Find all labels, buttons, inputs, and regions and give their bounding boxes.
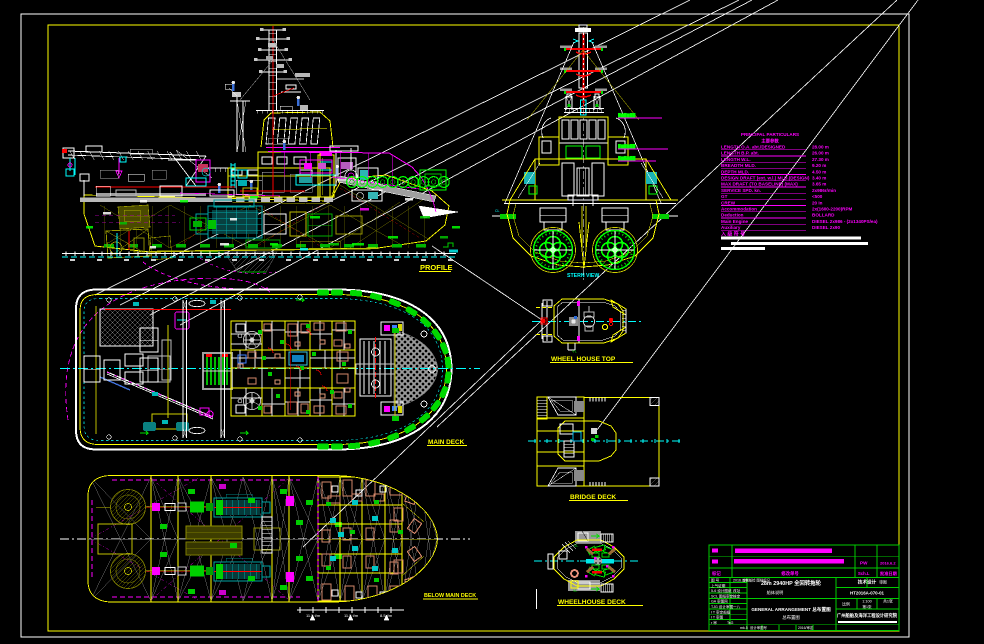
svg-text:5-6 设计图纸: 5-6 设计图纸 [711, 588, 732, 593]
svg-text:HT2016A-070-01: HT2016A-070-01 [850, 591, 884, 596]
svg-text:MAIN DECK: MAIN DECK [428, 439, 465, 446]
svg-text:BRIDGE DECK: BRIDGE DECK [570, 494, 616, 501]
svg-text:船体说明: 船体说明 [767, 589, 784, 596]
svg-text:WHEEL HOUSE TOP: WHEEL HOUSE TOP [551, 356, 616, 363]
svg-text:TJG 设计审图: TJG 设计审图 [711, 604, 734, 609]
svg-text:设计审图号: 设计审图号 [750, 625, 768, 630]
svg-text:LENGTH O.A. abt./DESIGNED: LENGTH O.A. abt./DESIGNED [721, 145, 786, 150]
svg-text:第1张: 第1张 [862, 604, 872, 609]
svg-text:上气证期: 上气证期 [711, 583, 726, 588]
svg-text:TsG: TsG [727, 621, 734, 625]
svg-text:PROFILE: PROFILE [420, 263, 453, 272]
svg-text:总布置图: 总布置图 [782, 614, 800, 621]
svg-text:SERVICE SPD. kn.: SERVICE SPD. kn. [721, 188, 761, 193]
svg-text:修改单号: 修改单号 [780, 570, 799, 577]
svg-text:4.50 m: 4.50 m [812, 169, 826, 174]
svg-text:CREW: CREW [721, 200, 736, 205]
svg-text:LENGTH W.L.: LENGTH W.L. [721, 157, 751, 162]
svg-text:标记: 标记 [711, 570, 721, 577]
svg-text:I T 审定船级: I T 审定船级 [711, 609, 731, 614]
svg-text:BREADTH MLD.: BREADTH MLD. [721, 163, 756, 168]
svg-text:GT: GT [721, 194, 728, 199]
svg-text:3.40 m: 3.40 m [812, 176, 826, 181]
svg-text:批准日期: 批准日期 [880, 570, 897, 577]
svg-text:Sch.L: Sch.L [858, 571, 870, 576]
svg-text:GA 审图网: GA 审图网 [711, 599, 728, 604]
svg-text:27.30 m: 27.30 m [812, 157, 829, 162]
svg-text:BELOW MAIN DECK: BELOW MAIN DECK [424, 593, 476, 599]
svg-text:2x986r/min: 2x986r/min [812, 188, 836, 193]
svg-text:r 审: r 审 [711, 620, 717, 625]
svg-text:<500: <500 [812, 194, 823, 199]
svg-text:GENERAL ARRANGEMENT 总布置图: GENERAL ARRANGEMENT 总布置图 [751, 606, 831, 613]
svg-text:Deduction: Deduction [721, 213, 744, 218]
svg-text:DEPTH MLD.: DEPTH MLD. [721, 169, 749, 174]
svg-text:BOLLARD: BOLLARD [812, 213, 835, 218]
svg-text:20 in: 20 in [812, 200, 823, 205]
svg-text:DESIGN DRAFT (ext. w.l.) MLD.(: DESIGN DRAFT (ext. w.l.) MLD.(DESIGN) [721, 176, 810, 181]
svg-text:首制船检 图样标记: 首制船检 图样标记 [742, 578, 771, 583]
svg-text:主要参数: 主要参数 [761, 138, 779, 145]
svg-text:审图: 审图 [879, 580, 887, 585]
svg-text:比例: 比例 [842, 602, 850, 607]
svg-text:Auxiliary: Auxiliary [721, 225, 741, 230]
svg-text:广州船舶及海洋工程设计研究院: 广州船舶及海洋工程设计研究院 [837, 612, 898, 619]
svg-text:SCL 图纸审定: SCL 图纸审定 [711, 593, 734, 598]
svg-text:改址: 改址 [733, 588, 741, 593]
svg-text:DIESEL 2x90: DIESEL 2x90 [812, 225, 840, 230]
svg-text:技术设计: 技术设计 [858, 579, 877, 586]
svg-text:一八: 一八 [733, 605, 741, 609]
svg-text:2x(1600-2200)RPM: 2x(1600-2200)RPM [812, 207, 853, 212]
svg-text:Main Engine: Main Engine [721, 219, 748, 224]
svg-text:mk.5: mk.5 [740, 626, 748, 630]
svg-text:入 级 符 号: 入 级 符 号 [721, 230, 745, 237]
svg-text:26.00 m: 26.00 m [812, 151, 829, 156]
svg-text:Accommodation: Accommodation [721, 207, 757, 212]
svg-text:LENGTH B.P. abt.: LENGTH B.P. abt. [721, 151, 759, 156]
svg-text:2016.6.2: 2016.6.2 [880, 561, 896, 566]
svg-text:9.20 m: 9.20 m [812, 163, 826, 168]
svg-text:1:100: 1:100 [862, 600, 872, 604]
svg-text:共1张: 共1张 [883, 599, 893, 604]
svg-text:图 号: 图 号 [711, 578, 720, 583]
svg-text:WHEELHOUSE DECK: WHEELHOUSE DECK [558, 599, 626, 606]
svg-text:核定: 核定 [733, 593, 741, 598]
svg-text:VL: VL [573, 589, 577, 593]
svg-text:CL: CL [495, 209, 500, 213]
svg-text:PRINCIPAL PARTICULARS: PRINCIPAL PARTICULARS [741, 132, 799, 137]
svg-text:VL: VL [572, 349, 578, 354]
svg-text:VL: VL [574, 544, 578, 548]
svg-text:3.65 m: 3.65 m [812, 182, 826, 187]
svg-text:I T 审图: I T 审图 [711, 615, 724, 620]
svg-text:DIESEL 2x986 - (2x1340PS/ea): DIESEL 2x986 - (2x1340PS/ea) [812, 219, 878, 224]
svg-text:28.00 m: 28.00 m [812, 145, 829, 150]
svg-text:MAX DRAFT (TO BASELINE) (MAX): MAX DRAFT (TO BASELINE) (MAX) [721, 182, 798, 187]
svg-text:STERN VIEW: STERN VIEW [567, 273, 599, 279]
svg-text:PW: PW [860, 561, 868, 566]
svg-text:2016/审定: 2016/审定 [798, 625, 814, 630]
